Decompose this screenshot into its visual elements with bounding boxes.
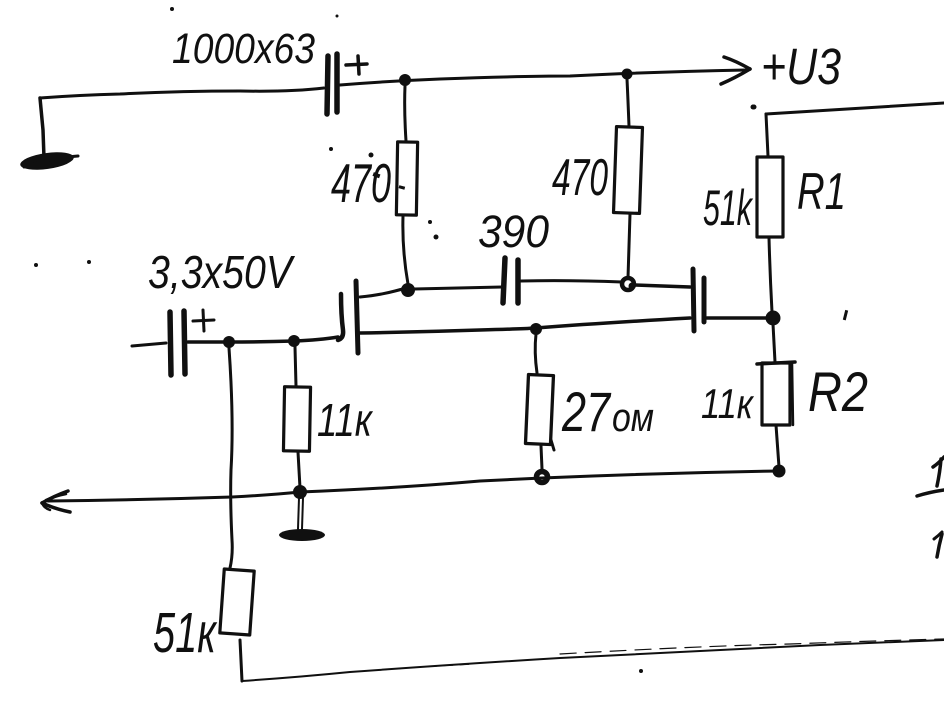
svg-text:R1: R1	[797, 163, 846, 221]
svg-text:51k: 51k	[703, 180, 754, 236]
svg-text:51к: 51к	[153, 601, 217, 665]
svg-text:470: 470	[552, 149, 608, 207]
svg-text:27: 27	[561, 380, 611, 443]
svg-text:11к: 11к	[701, 380, 755, 427]
svg-text:470: 470	[331, 152, 391, 214]
svg-text:+U3: +U3	[761, 38, 841, 95]
svg-text:ом: ом	[612, 396, 654, 440]
svg-text:390: 390	[478, 206, 549, 257]
svg-text:3,3x50V: 3,3x50V	[148, 246, 296, 298]
svg-text:11к: 11к	[317, 394, 374, 446]
svg-text:1000x63: 1000x63	[172, 25, 315, 73]
svg-text:R2: R2	[808, 360, 868, 423]
